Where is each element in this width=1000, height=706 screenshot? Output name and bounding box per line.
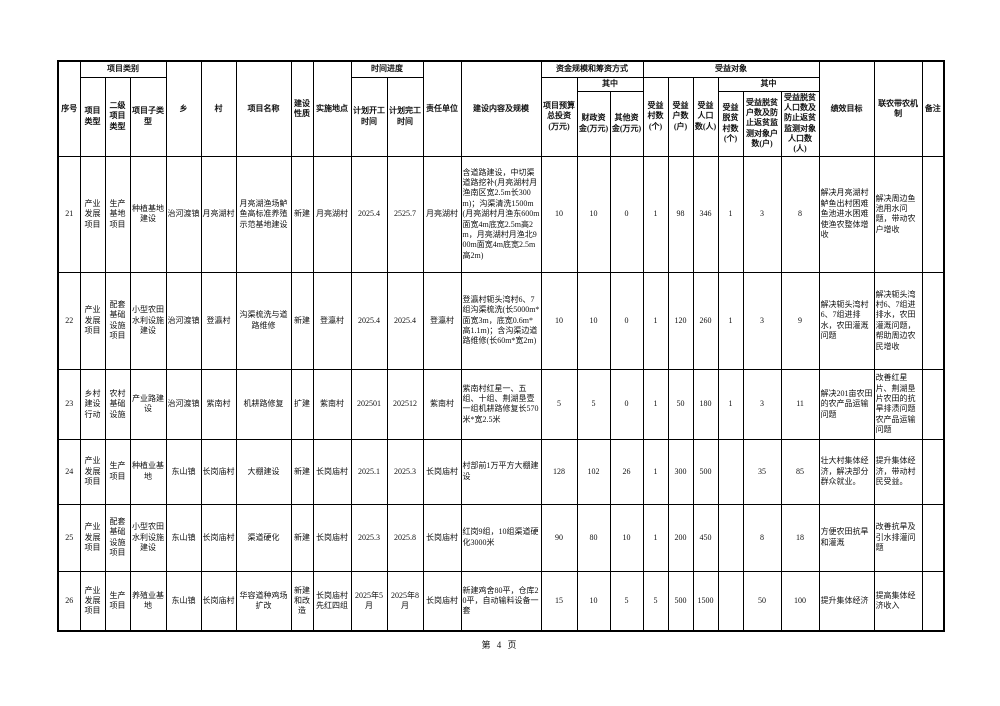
table-header: 序号 项目类别 乡 村 项目名称 建设性质 实施地点 时间进度 责任单位 建设内… xyxy=(58,61,944,156)
cell: 壮大村集体经济，解决部分群众就业。 xyxy=(819,439,874,504)
cell: 21 xyxy=(58,156,80,272)
cell: 10 xyxy=(577,272,610,369)
col-planned-start: 计划开工时间 xyxy=(351,77,387,156)
cell: 11 xyxy=(781,369,819,439)
cell: 提升集体经济 xyxy=(819,571,874,631)
cell: 机耕路修复 xyxy=(236,369,291,439)
header-row-1: 序号 项目类别 乡 村 项目名称 建设性质 实施地点 时间进度 责任单位 建设内… xyxy=(58,61,944,77)
project-table: 序号 项目类别 乡 村 项目名称 建设性质 实施地点 时间进度 责任单位 建设内… xyxy=(57,60,945,632)
cell: 沟渠梳洗与道路维修 xyxy=(236,272,291,369)
cell: 解决轭头湾村6、7组进排水，农田灌溉问题，帮助周边农民增收 xyxy=(874,272,922,369)
cell: 80 xyxy=(577,504,610,571)
cell: 3 xyxy=(743,156,781,272)
col-group-category: 项目类别 xyxy=(80,61,166,77)
cell: 长岗庙村 xyxy=(313,439,351,504)
cell: 大棚建设 xyxy=(236,439,291,504)
cell: 紫南村 xyxy=(201,369,236,439)
cell: 登瀛村 xyxy=(423,272,461,369)
cell: 乡村建设行动 xyxy=(80,369,105,439)
cell: 产业发展项目 xyxy=(80,571,105,631)
cell: 3 xyxy=(743,272,781,369)
cell: 120 xyxy=(668,272,693,369)
cell xyxy=(718,571,743,631)
cell: 新建和改造 xyxy=(291,571,313,631)
cell xyxy=(922,272,944,369)
col-other-funds: 其他资金(万元) xyxy=(610,91,643,156)
cell: 2025年5月 xyxy=(351,571,387,631)
cell: 小型农田水利设施建设 xyxy=(130,504,166,571)
cell: 2525.7 xyxy=(387,156,423,272)
cell: 10 xyxy=(541,156,577,272)
cell: 24 xyxy=(58,439,80,504)
cell: 长岗庙村先红四组 xyxy=(313,571,351,631)
cell: 0 xyxy=(610,369,643,439)
cell: 登瀛村轭头湾村6、7组沟渠梳洗(长5000m*面宽3m，底宽0.6m*高1.1m… xyxy=(461,272,541,369)
cell: 8 xyxy=(781,156,819,272)
col-poverty-population: 受益脱贫人口数及防止返贫监测对象人口数(人) xyxy=(781,91,819,156)
col-secondary-type: 二级项目类型 xyxy=(105,77,130,156)
col-implementation-site: 实施地点 xyxy=(313,61,351,156)
table-body: 21产业发展项目生产基地项目种植基地建设治河渡镇月亮湖村月亮湖渔场鲈鱼高标准养殖… xyxy=(58,156,944,631)
cell: 1 xyxy=(643,369,668,439)
cell: 产业发展项目 xyxy=(80,439,105,504)
cell: 村部前1万平方大棚建设 xyxy=(461,439,541,504)
table-row: 24产业发展项目生产项目种植业基地东山镇长岗庙村大棚建设新建长岗庙村2025.1… xyxy=(58,439,944,504)
cell: 10 xyxy=(577,156,610,272)
cell: 50 xyxy=(743,571,781,631)
cell xyxy=(922,571,944,631)
cell: 2025.4 xyxy=(351,156,387,272)
cell: 5 xyxy=(541,369,577,439)
cell: 红岗9组，10组渠道硬化3000米 xyxy=(461,504,541,571)
cell: 种植业基地 xyxy=(130,439,166,504)
cell: 扩建 xyxy=(291,369,313,439)
col-beneficiary-population: 受益人口数(人) xyxy=(693,77,718,156)
cell: 新建鸡舍80平，仓库20平，自动输料设备一套 xyxy=(461,571,541,631)
col-beneficiary-villages: 受益村数(个) xyxy=(643,77,668,156)
cell xyxy=(922,504,944,571)
cell: 东山镇 xyxy=(166,439,201,504)
cell: 180 xyxy=(693,369,718,439)
col-group-beneficiary: 受益对象 xyxy=(643,61,819,77)
col-planned-finish: 计划完工时间 xyxy=(387,77,423,156)
cell: 治河渡镇 xyxy=(166,156,201,272)
cell: 种植基地建设 xyxy=(130,156,166,272)
cell: 2025.3 xyxy=(387,439,423,504)
cell: 500 xyxy=(693,439,718,504)
cell: 8 xyxy=(743,504,781,571)
col-project-type: 项目类型 xyxy=(80,77,105,156)
cell: 农村基础设施 xyxy=(105,369,130,439)
cell: 解决周边鱼池用水问题，带动农户增收 xyxy=(874,156,922,272)
col-group-among-funds: 其中 xyxy=(577,77,643,91)
cell: 治河渡镇 xyxy=(166,369,201,439)
cell: 东山镇 xyxy=(166,571,201,631)
cell: 450 xyxy=(693,504,718,571)
cell: 长岗庙村 xyxy=(201,504,236,571)
cell: 新建 xyxy=(291,272,313,369)
cell: 1 xyxy=(643,156,668,272)
cell: 长岗庙村 xyxy=(201,571,236,631)
col-fiscal-funds: 财政资金(万元) xyxy=(577,91,610,156)
cell: 新建 xyxy=(291,156,313,272)
cell: 300 xyxy=(668,439,693,504)
cell: 养殖业基地 xyxy=(130,571,166,631)
cell: 10 xyxy=(610,504,643,571)
cell: 方便农田抗旱和灌溉 xyxy=(819,504,874,571)
cell: 改善红星片、荆湖垦片农田的抗旱排渍问题农产品运输问题 xyxy=(874,369,922,439)
cell: 200 xyxy=(668,504,693,571)
cell: 10 xyxy=(541,272,577,369)
cell: 生产项目 xyxy=(105,571,130,631)
cell: 2025.3 xyxy=(351,504,387,571)
cell: 产业发展项目 xyxy=(80,504,105,571)
cell: 202501 xyxy=(351,369,387,439)
cell: 22 xyxy=(58,272,80,369)
col-group-time-progress: 时间进度 xyxy=(351,61,423,77)
cell: 23 xyxy=(58,369,80,439)
cell: 1 xyxy=(643,272,668,369)
cell: 产业发展项目 xyxy=(80,272,105,369)
col-beneficiary-households: 受益户数(户) xyxy=(668,77,693,156)
cell: 月亮湖村 xyxy=(201,156,236,272)
col-group-among-beneficiary: 其中 xyxy=(718,77,819,91)
cell: 35 xyxy=(743,439,781,504)
cell xyxy=(718,504,743,571)
cell: 25 xyxy=(58,504,80,571)
cell: 260 xyxy=(693,272,718,369)
col-township: 乡 xyxy=(166,61,201,156)
col-remarks: 备注 xyxy=(922,61,944,156)
col-seq: 序号 xyxy=(58,61,80,156)
cell: 新建 xyxy=(291,504,313,571)
cell: 含道路建设，中切渠道路挖补(月亮湖村月渔南区宽2.5m长300m)；沟渠清洗15… xyxy=(461,156,541,272)
col-poverty-villages: 受益脱贫村数(个) xyxy=(718,91,743,156)
cell: 2025.8 xyxy=(387,504,423,571)
cell xyxy=(922,369,944,439)
cell: 2025年8月 xyxy=(387,571,423,631)
cell: 9 xyxy=(781,272,819,369)
cell: 东山镇 xyxy=(166,504,201,571)
cell: 5 xyxy=(577,369,610,439)
cell: 50 xyxy=(668,369,693,439)
cell: 1 xyxy=(718,156,743,272)
col-responsible-unit: 责任单位 xyxy=(423,61,461,156)
cell: 改善抗旱及引水排灌问题 xyxy=(874,504,922,571)
cell: 2025.4 xyxy=(351,272,387,369)
table-row: 22产业发展项目配套基础设施项目小型农田水利设施建设治河渡镇登瀛村沟渠梳洗与道路… xyxy=(58,272,944,369)
cell xyxy=(922,156,944,272)
cell: 华容道种鸡场扩改 xyxy=(236,571,291,631)
cell: 0 xyxy=(610,272,643,369)
cell: 1 xyxy=(718,369,743,439)
cell: 登瀛村 xyxy=(201,272,236,369)
cell: 提升集体经济，带动村民受益。 xyxy=(874,439,922,504)
cell: 18 xyxy=(781,504,819,571)
cell: 90 xyxy=(541,504,577,571)
cell: 渠道硬化 xyxy=(236,504,291,571)
cell: 85 xyxy=(781,439,819,504)
cell: 月亮湖渔场鲈鱼高标准养殖示范基地建设 xyxy=(236,156,291,272)
col-construction-nature: 建设性质 xyxy=(291,61,313,156)
cell: 26 xyxy=(610,439,643,504)
table-row: 21产业发展项目生产基地项目种植基地建设治河渡镇月亮湖村月亮湖渔场鲈鱼高标准养殖… xyxy=(58,156,944,272)
cell: 生产基地项目 xyxy=(105,156,130,272)
cell: 100 xyxy=(781,571,819,631)
col-group-funding: 资金规模和筹资方式 xyxy=(541,61,643,77)
cell: 346 xyxy=(693,156,718,272)
cell: 登瀛村 xyxy=(313,272,351,369)
cell: 配套基础设施项目 xyxy=(105,504,130,571)
col-farmer-linkage: 联农带农机制 xyxy=(874,61,922,156)
cell: 98 xyxy=(668,156,693,272)
cell: 5 xyxy=(610,571,643,631)
cell: 128 xyxy=(541,439,577,504)
cell: 长岗庙村 xyxy=(423,571,461,631)
cell: 解决月亮湖村鲈鱼出村困难鱼池进水困难使渔农整体增收 xyxy=(819,156,874,272)
cell: 产业发展项目 xyxy=(80,156,105,272)
table-row: 25产业发展项目配套基础设施项目小型农田水利设施建设东山镇长岗庙村渠道硬化新建长… xyxy=(58,504,944,571)
cell: 3 xyxy=(743,369,781,439)
cell: 2025.1 xyxy=(351,439,387,504)
cell: 5 xyxy=(643,571,668,631)
cell: 配套基础设施项目 xyxy=(105,272,130,369)
cell: 生产项目 xyxy=(105,439,130,504)
col-poverty-households: 受益脱贫户数及防止返贫监测对象户数(户) xyxy=(743,91,781,156)
cell xyxy=(718,439,743,504)
cell: 长岗庙村 xyxy=(201,439,236,504)
cell: 1500 xyxy=(693,571,718,631)
cell: 长岗庙村 xyxy=(423,504,461,571)
cell xyxy=(922,439,944,504)
col-sub-type: 项目子类型 xyxy=(130,77,166,156)
cell: 长岗庙村 xyxy=(313,504,351,571)
cell: 1 xyxy=(643,504,668,571)
cell: 紫南村红星一、五组、十组、荆湖垦壹一组机耕路修复长570米*宽2.5米 xyxy=(461,369,541,439)
col-total-budget: 项目预算总投资(万元) xyxy=(541,77,577,156)
cell: 26 xyxy=(58,571,80,631)
cell: 新建 xyxy=(291,439,313,504)
document-page: 序号 项目类别 乡 村 项目名称 建设性质 实施地点 时间进度 责任单位 建设内… xyxy=(0,0,1000,706)
col-village: 村 xyxy=(201,61,236,156)
cell: 解决201亩农田的农产品运输问题 xyxy=(819,369,874,439)
cell: 紫南村 xyxy=(313,369,351,439)
cell: 治河渡镇 xyxy=(166,272,201,369)
cell: 提高集体经济收入 xyxy=(874,571,922,631)
col-content-scale: 建设内容及规模 xyxy=(461,61,541,156)
cell: 2025.4 xyxy=(387,272,423,369)
cell: 202512 xyxy=(387,369,423,439)
cell: 产业路建设 xyxy=(130,369,166,439)
cell: 小型农田水利设施建设 xyxy=(130,272,166,369)
cell: 15 xyxy=(541,571,577,631)
cell: 0 xyxy=(610,156,643,272)
cell: 102 xyxy=(577,439,610,504)
col-project-name: 项目名称 xyxy=(236,61,291,156)
cell: 月亮湖村 xyxy=(423,156,461,272)
cell: 长岗庙村 xyxy=(423,439,461,504)
col-performance-goal: 绩效目标 xyxy=(819,61,874,156)
page-number: 第 4 页 xyxy=(0,638,1000,651)
table-row: 26产业发展项目生产项目养殖业基地东山镇长岗庙村华容道种鸡场扩改新建和改造长岗庙… xyxy=(58,571,944,631)
table-row: 23乡村建设行动农村基础设施产业路建设治河渡镇紫南村机耕路修复扩建紫南村2025… xyxy=(58,369,944,439)
cell: 紫南村 xyxy=(423,369,461,439)
cell: 10 xyxy=(577,571,610,631)
cell: 1 xyxy=(718,272,743,369)
cell: 月亮湖村 xyxy=(313,156,351,272)
cell: 解决轭头湾村6、7组进排水，农田灌溉问题 xyxy=(819,272,874,369)
cell: 500 xyxy=(668,571,693,631)
cell: 1 xyxy=(643,439,668,504)
